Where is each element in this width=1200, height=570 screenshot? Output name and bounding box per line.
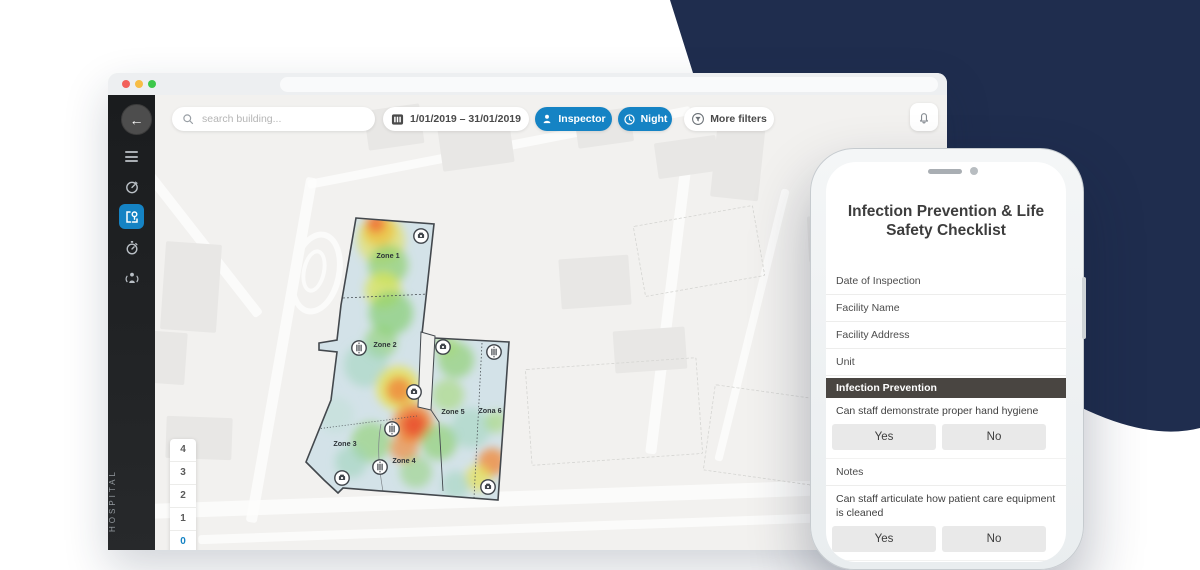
occupancy-icon xyxy=(124,270,140,286)
yes-button[interactable]: Yes xyxy=(832,424,936,450)
form-field[interactable]: Unit xyxy=(826,349,1066,376)
map-building xyxy=(160,241,222,333)
map-road xyxy=(198,511,898,544)
question-label: Can staff articulate how patient care eq… xyxy=(826,486,1066,524)
search-bar[interactable] xyxy=(172,107,375,131)
close-window-icon[interactable] xyxy=(122,80,130,88)
camera-icon[interactable] xyxy=(335,471,349,485)
phone-screen: Infection Prevention & Life Safety Check… xyxy=(826,162,1066,562)
browser-tab-strip[interactable] xyxy=(280,77,938,92)
calendar-icon xyxy=(391,113,404,126)
checklist-question: Can staff demonstrate proper hand hygien… xyxy=(826,398,1066,459)
floor-option-4[interactable]: 4 xyxy=(170,439,196,462)
phone-mockup: Infection Prevention & Life Safety Check… xyxy=(810,148,1084,570)
window-titlebar xyxy=(108,73,947,95)
minimize-window-icon[interactable] xyxy=(135,80,143,88)
yes-button[interactable]: Yes xyxy=(832,526,936,552)
camera-icon[interactable] xyxy=(407,385,421,399)
no-button[interactable]: No xyxy=(942,424,1046,450)
floor-option-1[interactable]: 1 xyxy=(170,508,196,531)
building-heatmap[interactable]: Zone 1Zone 2Zone 3Zone 4Zone 5Zona 6 xyxy=(296,210,516,505)
stopwatch-icon xyxy=(124,240,140,256)
inspector-label: Inspector xyxy=(558,113,605,125)
question-label: Can staff demonstrate proper hand hygien… xyxy=(826,398,1066,422)
night-filter-button[interactable]: Night xyxy=(618,107,672,131)
maximize-window-icon[interactable] xyxy=(148,80,156,88)
clock-icon xyxy=(623,113,636,126)
traffic-lights xyxy=(122,80,156,88)
zone-label: Zone 1 xyxy=(376,251,399,260)
zone-label: Zone 5 xyxy=(441,407,464,416)
sensor-icon[interactable] xyxy=(385,422,399,436)
phone-side-button xyxy=(1082,277,1086,339)
form-field[interactable]: Facility Name xyxy=(826,295,1066,322)
inspector-filter-button[interactable]: Inspector xyxy=(535,107,612,131)
floor-option-3[interactable]: 3 xyxy=(170,462,196,485)
zone-label: Zona 6 xyxy=(478,406,501,415)
phone-speaker xyxy=(928,169,962,174)
no-button[interactable]: No xyxy=(942,526,1046,552)
notifications-button[interactable] xyxy=(910,103,938,131)
sensor-icon[interactable] xyxy=(352,341,366,355)
search-icon xyxy=(182,113,194,125)
zone-label: Zone 4 xyxy=(392,456,415,465)
app-sidebar: ← xyxy=(108,95,155,550)
form-field[interactable]: Date of Inspection xyxy=(826,268,1066,295)
sidebar-item-gauge[interactable] xyxy=(119,174,144,199)
bell-icon xyxy=(917,110,931,124)
form-field[interactable]: Notes xyxy=(826,459,1066,486)
sidebar-item-timer[interactable] xyxy=(119,235,144,260)
menu-icon[interactable] xyxy=(125,151,138,165)
map-building xyxy=(710,119,766,202)
map-building xyxy=(558,255,631,310)
building-name-vertical-label: HOSPITAL xyxy=(108,466,155,536)
map-building xyxy=(654,135,720,179)
back-button[interactable]: ← xyxy=(121,104,152,135)
date-range-picker[interactable]: 1/01/2019 – 31/01/2019 xyxy=(383,107,529,131)
sidebar-item-floorplan[interactable] xyxy=(119,204,144,229)
camera-icon[interactable] xyxy=(481,480,495,494)
map-parking-outline xyxy=(633,205,766,297)
person-icon xyxy=(541,113,553,125)
sensor-icon[interactable] xyxy=(373,460,387,474)
map-parking-outline xyxy=(525,357,703,466)
search-input[interactable] xyxy=(200,112,364,126)
floor-selector[interactable]: 43210S1 xyxy=(170,439,196,550)
form-field[interactable]: Facility Address xyxy=(826,322,1066,349)
floor-option-0[interactable]: 0 xyxy=(170,531,196,550)
more-filters-label: More filters xyxy=(710,113,767,125)
filter-icon xyxy=(691,112,705,126)
section-header: Infection Prevention xyxy=(826,378,1066,398)
checklist-form: Date of InspectionFacility NameFacility … xyxy=(826,268,1066,562)
sensor-icon[interactable] xyxy=(487,345,501,359)
zone-label: Zone 3 xyxy=(333,439,356,448)
checklist-title: Infection Prevention & Life Safety Check… xyxy=(840,202,1052,241)
sidebar-item-occupancy[interactable] xyxy=(119,265,144,290)
zone-label: Zone 2 xyxy=(373,340,396,349)
camera-icon[interactable] xyxy=(414,229,428,243)
gauge-icon xyxy=(124,179,140,195)
date-range-value: 1/01/2019 – 31/01/2019 xyxy=(410,113,521,125)
phone-camera-icon xyxy=(970,167,978,175)
floorplan-pin-icon xyxy=(124,209,140,225)
more-filters-button[interactable]: More filters xyxy=(684,107,774,131)
floor-option-2[interactable]: 2 xyxy=(170,485,196,508)
night-label: Night xyxy=(641,113,668,125)
camera-icon[interactable] xyxy=(436,340,450,354)
